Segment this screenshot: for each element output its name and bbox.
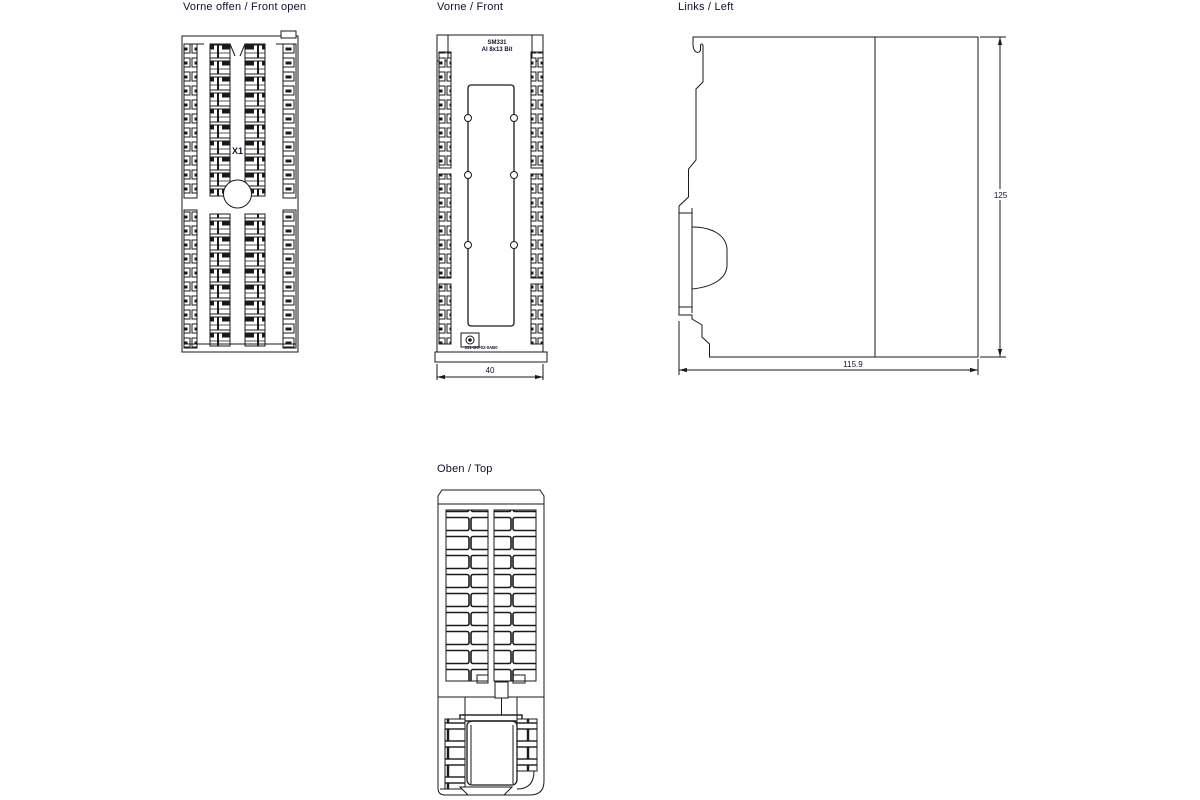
- front-open-view: X1: [178, 28, 304, 358]
- top-module-outline: [438, 490, 544, 795]
- dimension-depth-value: 115.9: [843, 360, 863, 369]
- module-name-line1: SM331: [487, 40, 507, 46]
- screw-terminals-right-upper: [245, 44, 265, 196]
- dimension-width-value: 40: [486, 366, 495, 375]
- locking-tab: [495, 682, 508, 698]
- vent-slots-left: [446, 510, 488, 681]
- front-connector-top: [467, 721, 517, 785]
- screw-terminals-right-lower: [245, 214, 265, 346]
- terminal-strip-right-upper: [283, 44, 296, 198]
- led-strip-left-1: [439, 52, 451, 168]
- screw-terminals-left-lower: [210, 214, 230, 346]
- left-module-outline: [679, 37, 1006, 375]
- led-strip-right-2: [531, 174, 543, 278]
- left-view-label: Links / Left: [678, 1, 734, 13]
- front-connector-door: [468, 85, 514, 326]
- vent-slots-right: [494, 510, 536, 681]
- top-view: [428, 458, 552, 800]
- front-open-view-label: Vorne offen / Front open: [183, 1, 306, 13]
- drawing-canvas: Vorne offen / Front open Vorne / Front L…: [0, 0, 1200, 800]
- led-strip-right-3: [531, 284, 543, 344]
- top-tab: [281, 31, 296, 38]
- dimension-height-value: 125: [994, 191, 1008, 200]
- front-open-module-outline: [182, 31, 298, 352]
- bottom-flange: [435, 352, 547, 362]
- bottom-notch: [460, 787, 512, 795]
- side-slots-left: [445, 719, 465, 789]
- terminal-strip-right-lower: [283, 210, 296, 348]
- inner-corner-arc: [517, 771, 534, 789]
- order-number: 331-1KF02-0AB0: [464, 345, 498, 350]
- terminal-strip-left-upper: [184, 44, 197, 198]
- front-module-outline: [435, 35, 547, 380]
- mounting-hole: [224, 180, 252, 208]
- connector-x1-label: X1: [232, 146, 243, 156]
- led-strip-right-1: [531, 52, 543, 168]
- terminal-strip-left-lower: [184, 210, 197, 348]
- connector-bump: [692, 227, 727, 289]
- screw-terminals-left-upper: [210, 44, 230, 196]
- module-name-line2: AI 8x13 Bit: [482, 47, 513, 53]
- led-strip-left-2: [439, 174, 451, 278]
- dimension-line-depth: [679, 321, 978, 375]
- front-view-label: Vorne / Front: [437, 1, 503, 13]
- left-view: 125 115.9: [668, 23, 1018, 385]
- led-strip-left-3: [439, 284, 451, 344]
- side-profile: [679, 37, 978, 357]
- connector-latch-bar: [460, 715, 522, 721]
- front-view: SM331 AI 8x13 Bit 331-1KF02-0AB0 40: [433, 28, 549, 384]
- front-connector-side: [679, 208, 692, 313]
- side-slots-right: [517, 719, 537, 771]
